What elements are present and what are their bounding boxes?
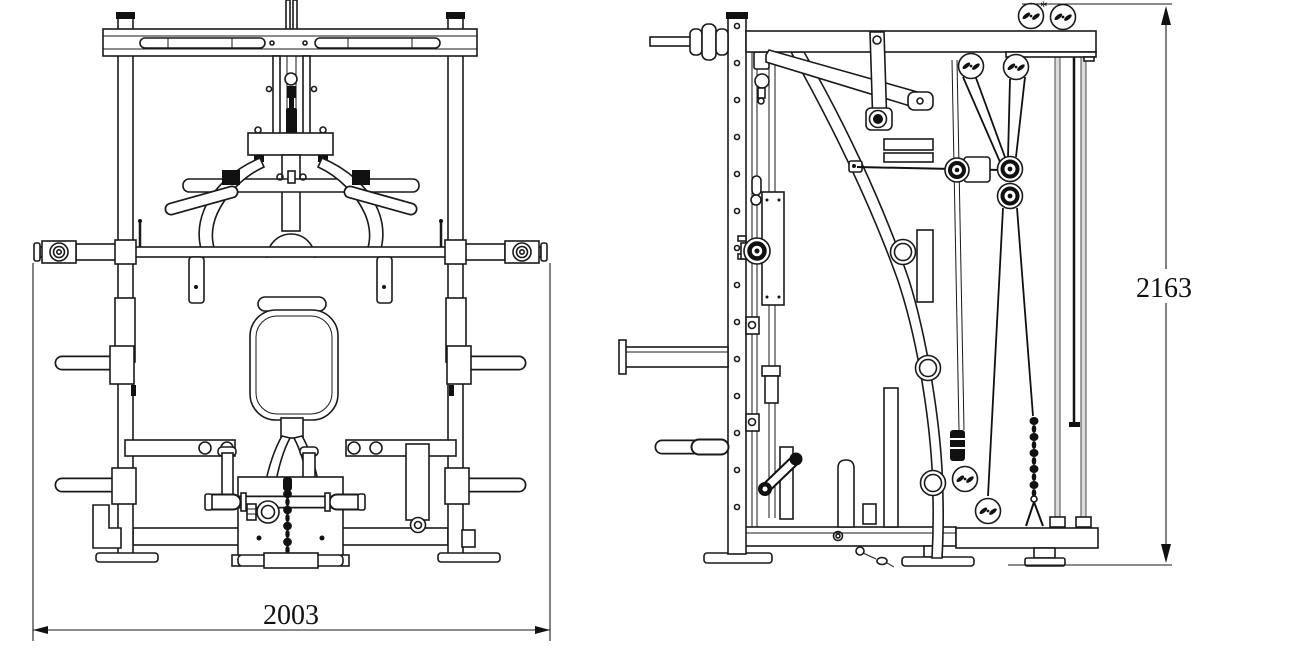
- height-dimension-label: 2163: [1136, 273, 1192, 304]
- bench-mount-beam: [619, 340, 728, 374]
- floor-pulley-a: [953, 467, 978, 492]
- floor-pulley-b: [976, 499, 1001, 524]
- side-view: [619, 4, 1098, 568]
- under-beam-pulley-b: [1004, 55, 1029, 80]
- low-row-footplate: [205, 447, 365, 568]
- weight-stack-guide-rods: [1050, 52, 1091, 527]
- rail-back-plate: [917, 230, 933, 302]
- adjustment-knob: [247, 501, 279, 523]
- headrest-bar: [258, 297, 326, 311]
- pivot-block: [248, 133, 333, 155]
- arrowhead-up: [1161, 6, 1171, 25]
- stacked-pulley-lower: [998, 184, 1023, 209]
- right-foot-plate: [438, 553, 500, 562]
- left-press-handle: [171, 192, 232, 209]
- arrowhead-down: [1161, 544, 1171, 563]
- right-hanger-plate: [377, 257, 392, 303]
- under-beam-pulley-a: [959, 54, 984, 79]
- left-corner-bracket: [93, 505, 121, 548]
- front-view: [34, 0, 547, 568]
- width-dimension-label: 2003: [263, 600, 319, 631]
- rail-roller-top: [891, 240, 916, 265]
- seat-pedestal: [281, 418, 303, 438]
- arrowhead-right: [535, 626, 550, 634]
- latch-hook-lower: [751, 176, 761, 205]
- crossbar-left-slot: [140, 38, 265, 48]
- top-guide-rods: [286, 0, 297, 30]
- cable-runs: [952, 60, 1033, 496]
- crossbar-right-slot: [315, 38, 440, 48]
- bar-catch-lower: [746, 414, 759, 431]
- stack-base-beam: [956, 528, 1098, 548]
- height-dimension: 2163 *: [1008, 0, 1192, 565]
- technical-drawing-sheet: 2003 2163 *: [0, 0, 1296, 671]
- left-foot-plate: [96, 553, 158, 562]
- rail-roller-mid: [916, 356, 941, 381]
- carriage-knob: [285, 73, 297, 85]
- rail-roller-bottom: [921, 471, 946, 496]
- stack-chain: [1026, 417, 1043, 526]
- center-guide-tower: [248, 56, 333, 162]
- stacked-pulley-upper: [998, 157, 1023, 182]
- top-reference-marker: *: [1040, 0, 1048, 15]
- cable-stopper: [950, 430, 965, 461]
- arrowhead-left: [33, 626, 48, 634]
- top-crossbar: [103, 29, 477, 56]
- bar-catch-upper: [746, 317, 759, 334]
- mid-pulley-housing: [945, 157, 990, 182]
- side-pivot-plate: [406, 444, 429, 533]
- base-clip-chain: [856, 547, 894, 567]
- back-pad: [250, 310, 338, 420]
- gym-machine-two-view-drawing: 2003 2163 *: [0, 0, 1296, 671]
- top-pulley-b: [1051, 5, 1076, 30]
- right-press-handle: [350, 192, 411, 209]
- side-base-frame: [704, 527, 1098, 567]
- left-hanger-plate: [189, 257, 204, 303]
- right-press-arm: [318, 158, 383, 257]
- press-lever-arm: [766, 50, 923, 106]
- right-corner-block: [462, 530, 475, 547]
- smith-bar-end: [650, 24, 728, 60]
